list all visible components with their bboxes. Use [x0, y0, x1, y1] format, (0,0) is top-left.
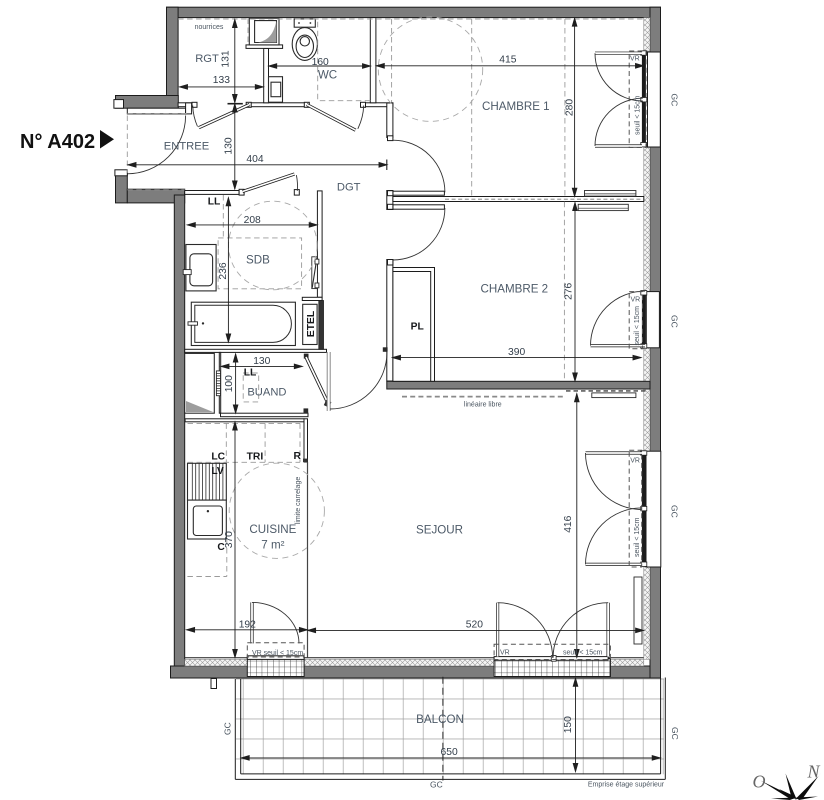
svg-text:R: R: [293, 451, 301, 462]
svg-text:130: 130: [224, 137, 235, 154]
svg-text:GC: GC: [223, 722, 233, 735]
svg-text:131: 131: [220, 50, 231, 67]
svg-text:PL: PL: [411, 322, 424, 333]
svg-text:CUISINE: CUISINE: [249, 523, 296, 536]
svg-text:7 m²: 7 m²: [261, 539, 284, 552]
svg-text:LL: LL: [244, 368, 257, 379]
svg-text:VR: VR: [630, 56, 640, 63]
svg-text:seuil < 15cm: seuil < 15cm: [635, 95, 642, 135]
svg-text:GC: GC: [670, 94, 680, 107]
svg-text:SDB: SDB: [246, 254, 270, 267]
svg-text:VR: VR: [631, 297, 641, 304]
svg-text:Emprise étage supérieur: Emprise étage supérieur: [588, 781, 665, 788]
svg-text:nourrices: nourrices: [195, 24, 224, 31]
svg-text:O: O: [753, 772, 766, 792]
svg-text:208: 208: [244, 215, 261, 226]
svg-text:WC: WC: [318, 68, 337, 81]
svg-text:150: 150: [563, 716, 574, 733]
svg-text:276: 276: [564, 282, 575, 299]
svg-text:DGT: DGT: [337, 182, 361, 194]
svg-text:TRI: TRI: [247, 452, 264, 463]
svg-text:LL: LL: [208, 197, 221, 208]
svg-text:100: 100: [224, 375, 235, 392]
svg-text:C: C: [217, 542, 225, 553]
svg-text:N: N: [807, 762, 821, 782]
svg-text:GC: GC: [670, 315, 680, 328]
svg-text:390: 390: [508, 347, 525, 358]
svg-text:133: 133: [213, 75, 230, 86]
svg-text:N° A402: N° A402: [20, 131, 95, 153]
svg-text:LC: LC: [211, 452, 225, 463]
svg-text:SEJOUR: SEJOUR: [416, 524, 463, 537]
svg-text:GC: GC: [670, 505, 680, 518]
svg-text:ENTREE: ENTREE: [164, 141, 209, 153]
svg-text:415: 415: [499, 54, 516, 65]
svg-text:130: 130: [253, 356, 270, 367]
svg-text:520: 520: [466, 620, 483, 631]
svg-text:BALCON: BALCON: [416, 713, 464, 726]
svg-text:VR: VR: [500, 650, 510, 657]
svg-text:CHAMBRE 1: CHAMBRE 1: [482, 100, 550, 113]
svg-text:limite carrelage: limite carrelage: [295, 477, 302, 525]
svg-text:160: 160: [312, 57, 329, 68]
svg-text:404: 404: [246, 154, 263, 165]
svg-text:seuil < 15cm: seuil < 15cm: [634, 306, 641, 346]
svg-text:370: 370: [224, 531, 235, 548]
svg-text:GC: GC: [430, 780, 443, 790]
svg-text:280: 280: [564, 99, 575, 116]
svg-text:236: 236: [218, 262, 229, 279]
svg-text:192: 192: [239, 620, 256, 631]
svg-text:416: 416: [563, 515, 574, 532]
svg-text:CHAMBRE 2: CHAMBRE 2: [480, 283, 548, 296]
svg-text:linéaire libre: linéaire libre: [464, 402, 502, 409]
svg-text:seuil < 15cm: seuil < 15cm: [563, 650, 603, 657]
svg-text:ETEL: ETEL: [306, 311, 317, 337]
svg-text:seuil < 15cm: seuil < 15cm: [634, 517, 641, 557]
svg-text:RGT: RGT: [195, 53, 219, 65]
svg-text:BUAND: BUAND: [247, 387, 286, 399]
svg-text:VR seuil < 15cm: VR seuil < 15cm: [252, 650, 303, 657]
svg-text:LV: LV: [211, 466, 224, 477]
svg-text:GC: GC: [670, 727, 680, 740]
svg-text:VR: VR: [630, 458, 640, 465]
svg-text:650: 650: [441, 747, 458, 758]
